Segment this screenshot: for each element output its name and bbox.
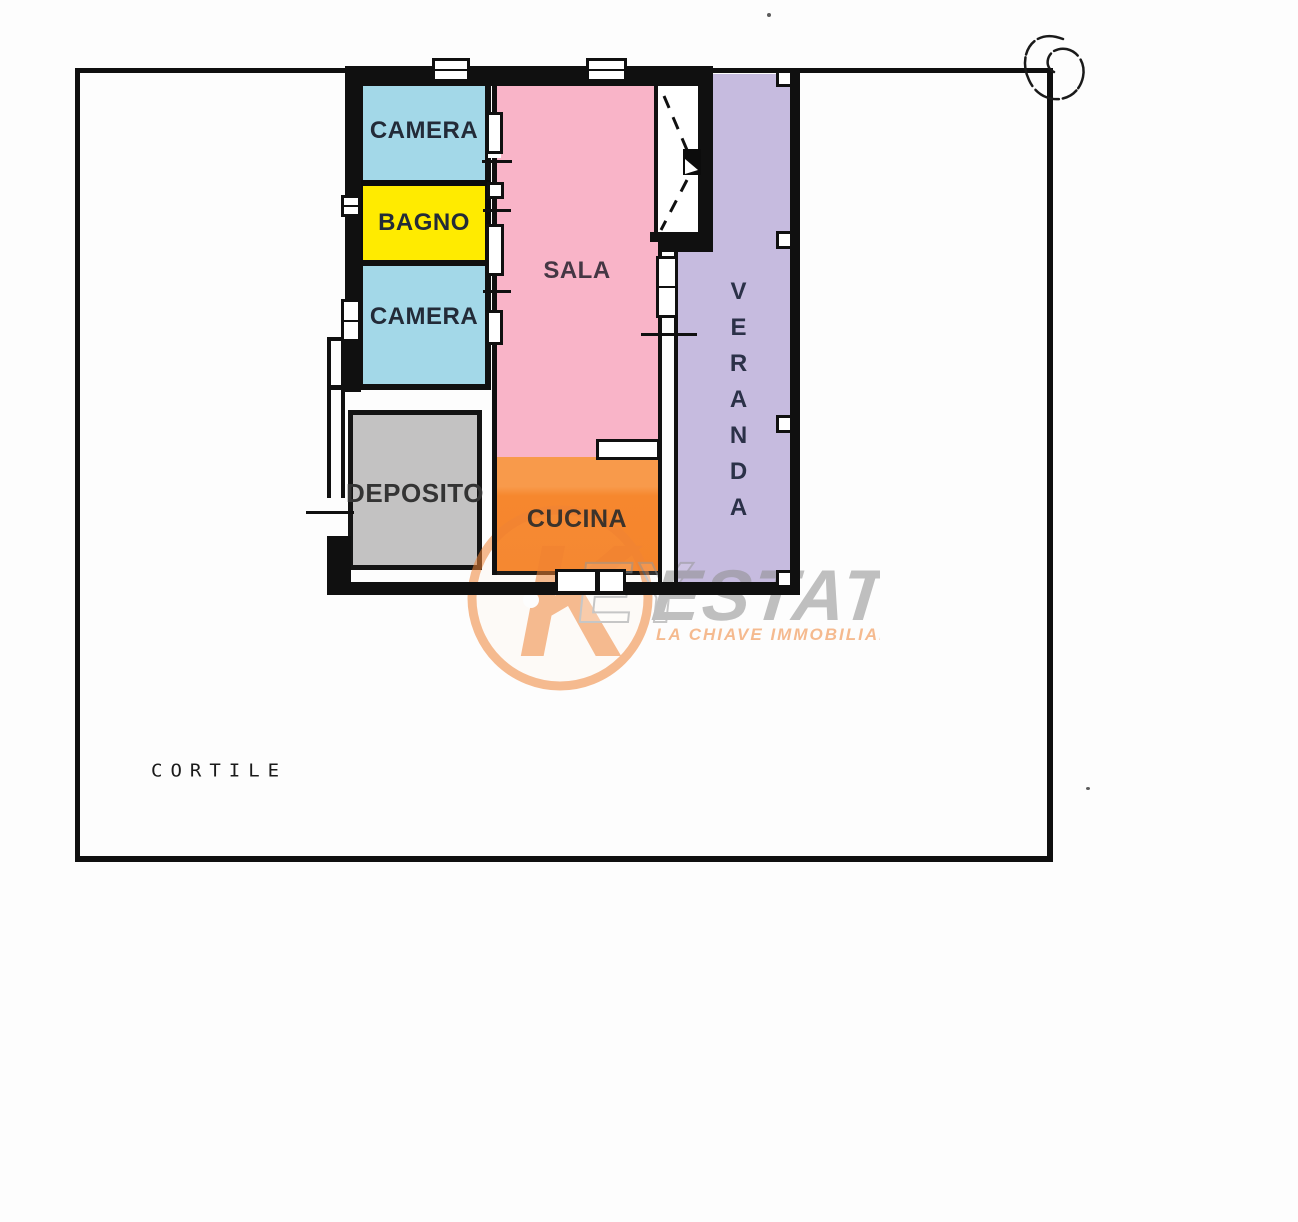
bagno-corner-notch <box>487 182 504 199</box>
floor-plan-scan: CAMERA BAGNO CAMERA SALA CUCINA DEPOSITO… <box>0 0 1298 1222</box>
window-top-1 <box>432 58 470 82</box>
door-sala-veranda-leaf <box>656 256 678 318</box>
label-cucina: CUCINA <box>496 505 658 534</box>
label-deposito: DEPOSITO <box>345 478 485 509</box>
label-veranda: VERANDA <box>726 278 750 528</box>
cucina-counter <box>596 439 660 460</box>
door-camera-top-tick <box>482 160 512 163</box>
veranda-opening-4 <box>776 570 793 588</box>
wall-annex-cap2 <box>327 385 347 390</box>
wall-annex-inner <box>341 337 345 498</box>
watermark-tagline: LA CHIAVE IMMOBILIARE <box>656 625 880 644</box>
veranda-opening-3 <box>776 415 793 433</box>
label-sala: SALA <box>496 257 658 285</box>
watermark-brand: ESTATE <box>649 556 880 636</box>
label-camera-top: CAMERA <box>357 117 491 145</box>
boundary-wall-bottom <box>75 856 1052 862</box>
window-cucina-bottom-1 <box>555 569 598 594</box>
scan-speck-2 <box>1086 787 1090 790</box>
window-cucina-bottom-2 <box>597 569 626 594</box>
boundary-wall-left <box>75 68 80 862</box>
boundary-wall-right <box>1047 68 1053 862</box>
door-camera-bottom-tick <box>483 290 511 293</box>
window-top-2 <box>586 58 627 82</box>
door-sala-veranda-tick <box>641 333 697 336</box>
door-deposito-tick <box>306 511 354 514</box>
hand-drawn-scribble <box>1005 25 1115 125</box>
scan-speck-1 <box>767 13 771 17</box>
label-bagno: BAGNO <box>357 209 491 237</box>
wall-annex-block <box>327 536 351 582</box>
stair-symbol <box>650 80 720 250</box>
veranda-opening-1 <box>776 70 793 87</box>
label-camera-bottom: CAMERA <box>357 303 491 331</box>
veranda-opening-2 <box>776 231 793 249</box>
wall-annex-outer <box>327 337 331 498</box>
label-cortile: CORTILE <box>151 761 287 782</box>
wall-veranda-right <box>790 68 800 590</box>
